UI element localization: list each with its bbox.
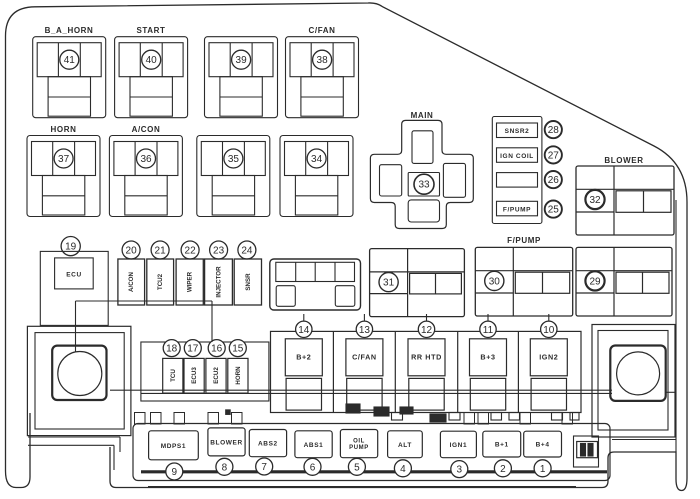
svg-text:38: 38 — [317, 55, 329, 66]
svg-text:OIL: OIL — [353, 439, 365, 445]
svg-text:F/PUMP: F/PUMP — [503, 207, 531, 214]
svg-text:6: 6 — [310, 462, 316, 473]
svg-text:BLOWER: BLOWER — [210, 439, 243, 446]
svg-text:ABS1: ABS1 — [304, 442, 324, 449]
svg-text:B+1: B+1 — [495, 442, 509, 449]
svg-text:30: 30 — [489, 276, 501, 287]
svg-text:C/FAN: C/FAN — [309, 26, 336, 35]
svg-text:B_A_HORN: B_A_HORN — [45, 26, 94, 35]
svg-text:16: 16 — [211, 344, 223, 355]
svg-text:A/CON: A/CON — [128, 272, 135, 292]
svg-text:31: 31 — [383, 278, 395, 289]
svg-text:B+3: B+3 — [480, 353, 495, 362]
svg-text:17: 17 — [187, 344, 199, 355]
svg-text:PUMP: PUMP — [349, 445, 369, 451]
svg-text:SNSR2: SNSR2 — [505, 128, 530, 135]
svg-text:ABS2: ABS2 — [258, 441, 278, 448]
svg-text:23: 23 — [213, 246, 225, 257]
svg-text:ECU: ECU — [66, 272, 82, 279]
svg-text:RR HTD: RR HTD — [411, 353, 442, 362]
svg-text:32: 32 — [589, 195, 601, 206]
svg-text:33: 33 — [418, 180, 430, 191]
svg-text:WIPER: WIPER — [187, 271, 194, 292]
svg-text:2: 2 — [500, 464, 506, 475]
svg-text:F/PUMP: F/PUMP — [507, 236, 541, 245]
svg-text:24: 24 — [241, 246, 253, 257]
svg-text:25: 25 — [548, 205, 560, 216]
svg-text:41: 41 — [64, 55, 76, 66]
svg-text:1: 1 — [540, 464, 546, 475]
svg-text:21: 21 — [155, 246, 167, 257]
svg-text:3: 3 — [457, 465, 463, 476]
svg-text:40: 40 — [146, 55, 158, 66]
svg-text:29: 29 — [589, 276, 601, 287]
svg-text:34: 34 — [311, 154, 323, 165]
svg-text:18: 18 — [166, 344, 178, 355]
svg-text:ECU3: ECU3 — [191, 367, 198, 384]
svg-text:A/CON: A/CON — [132, 125, 161, 134]
svg-text:ECU2: ECU2 — [213, 367, 220, 384]
svg-text:39: 39 — [236, 55, 248, 66]
svg-text:B+4: B+4 — [536, 442, 550, 449]
svg-text:28: 28 — [548, 125, 560, 136]
svg-text:5: 5 — [354, 462, 360, 473]
svg-text:SNSR: SNSR — [245, 273, 252, 291]
svg-text:TCU2: TCU2 — [157, 273, 164, 290]
svg-text:37: 37 — [58, 154, 70, 165]
svg-text:12: 12 — [421, 325, 433, 336]
svg-text:C/FAN: C/FAN — [352, 353, 377, 362]
svg-text:4: 4 — [400, 464, 406, 475]
svg-text:36: 36 — [140, 154, 152, 165]
svg-text:START: START — [136, 26, 165, 35]
svg-text:MAIN: MAIN — [411, 111, 434, 120]
svg-text:IGN1: IGN1 — [450, 442, 468, 449]
svg-text:BLOWER: BLOWER — [604, 156, 643, 165]
svg-text:14: 14 — [298, 325, 310, 336]
svg-text:27: 27 — [548, 150, 560, 161]
svg-text:B+2: B+2 — [296, 353, 311, 362]
svg-text:MDPS1: MDPS1 — [161, 443, 186, 450]
svg-text:11: 11 — [483, 325, 494, 336]
svg-text:TCU: TCU — [170, 369, 177, 382]
svg-text:IGN COIL: IGN COIL — [500, 153, 534, 160]
svg-text:15: 15 — [232, 344, 244, 355]
svg-text:ALT: ALT — [398, 442, 412, 449]
svg-text:IGN2: IGN2 — [539, 353, 558, 362]
svg-text:22: 22 — [185, 246, 197, 257]
svg-text:8: 8 — [222, 462, 228, 473]
svg-text:26: 26 — [548, 175, 560, 186]
svg-text:10: 10 — [543, 325, 555, 336]
svg-text:35: 35 — [228, 154, 240, 165]
svg-text:7: 7 — [261, 462, 267, 473]
svg-text:20: 20 — [126, 246, 138, 257]
svg-text:9: 9 — [172, 467, 178, 478]
svg-text:13: 13 — [359, 325, 371, 336]
svg-text:INJECTOR: INJECTOR — [216, 266, 223, 298]
svg-text:HORN: HORN — [51, 125, 77, 134]
svg-text:HORN: HORN — [235, 366, 242, 385]
